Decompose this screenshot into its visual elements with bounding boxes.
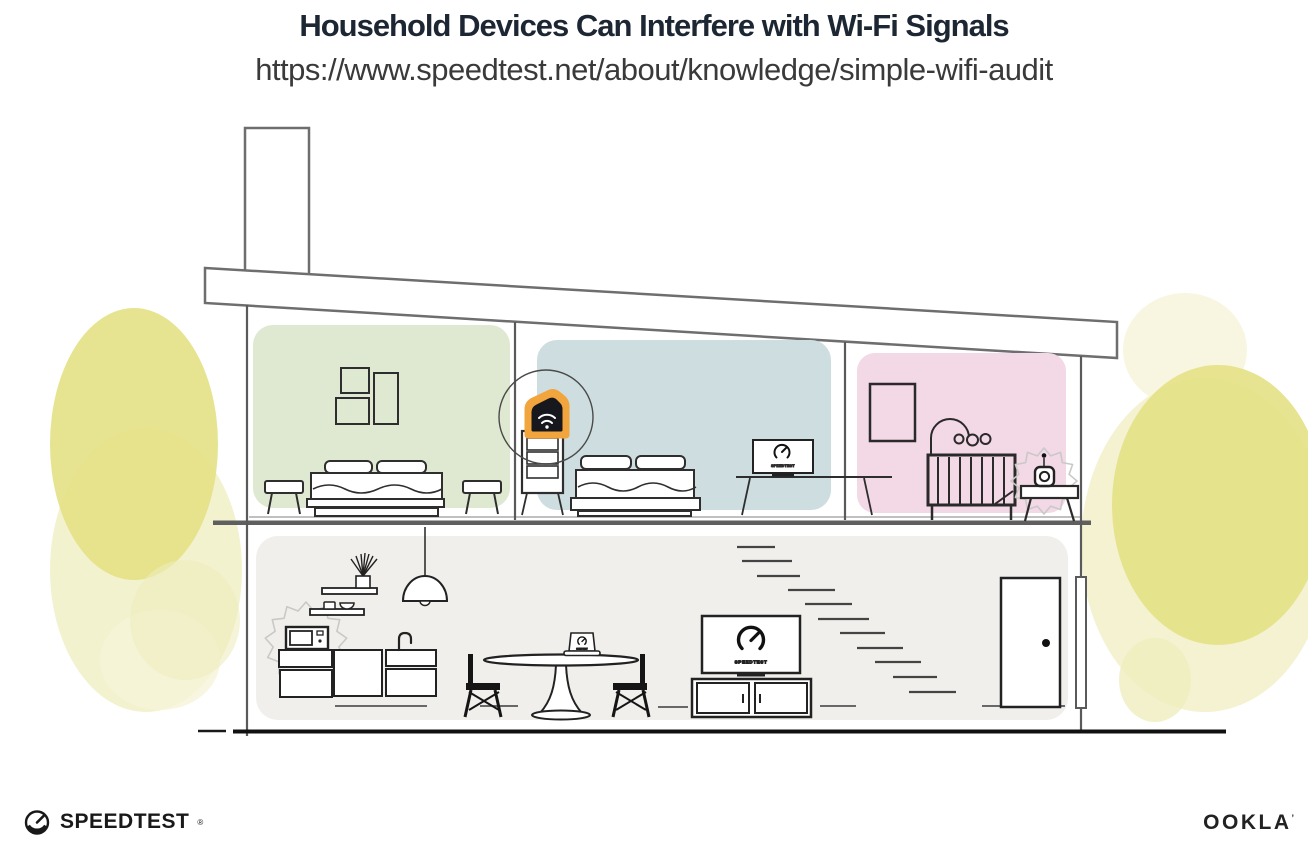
bed	[571, 456, 700, 516]
chimney	[245, 128, 309, 278]
infographic-canvas: Household Devices Can Interfere with Wi-…	[0, 0, 1308, 861]
microwave	[286, 627, 328, 649]
media-console	[692, 679, 811, 717]
speedtest-wordmark: SPEEDTEST	[60, 810, 189, 834]
speedtest-logo: SPEEDTEST®	[22, 807, 203, 837]
ookla-trademark: ’	[1291, 813, 1294, 823]
bedroom-tv-label: SPEEDTEST	[771, 464, 795, 468]
kitchen-cabinets	[279, 650, 436, 697]
speedtest-gauge-icon	[22, 807, 52, 837]
living-tv-label: SPEEDTEST	[735, 660, 768, 665]
door	[1001, 578, 1060, 707]
floor-divider	[213, 521, 1091, 526]
speedtest-trademark: ®	[197, 818, 203, 827]
living-room: SPEEDTEST	[692, 616, 811, 717]
ookla-wordmark: OOKLA	[1203, 811, 1291, 834]
entry	[1001, 577, 1086, 708]
house-illustration: SPEEDTEST	[0, 0, 1308, 861]
wifi-router	[528, 393, 566, 436]
downspout	[1076, 577, 1086, 708]
bedroom-tv: SPEEDTEST	[753, 440, 813, 475]
door-knob	[1042, 639, 1050, 647]
ookla-logo: OOKLA’	[1203, 811, 1294, 835]
living-tv: SPEEDTEST	[702, 616, 800, 675]
left-bush	[50, 308, 242, 712]
